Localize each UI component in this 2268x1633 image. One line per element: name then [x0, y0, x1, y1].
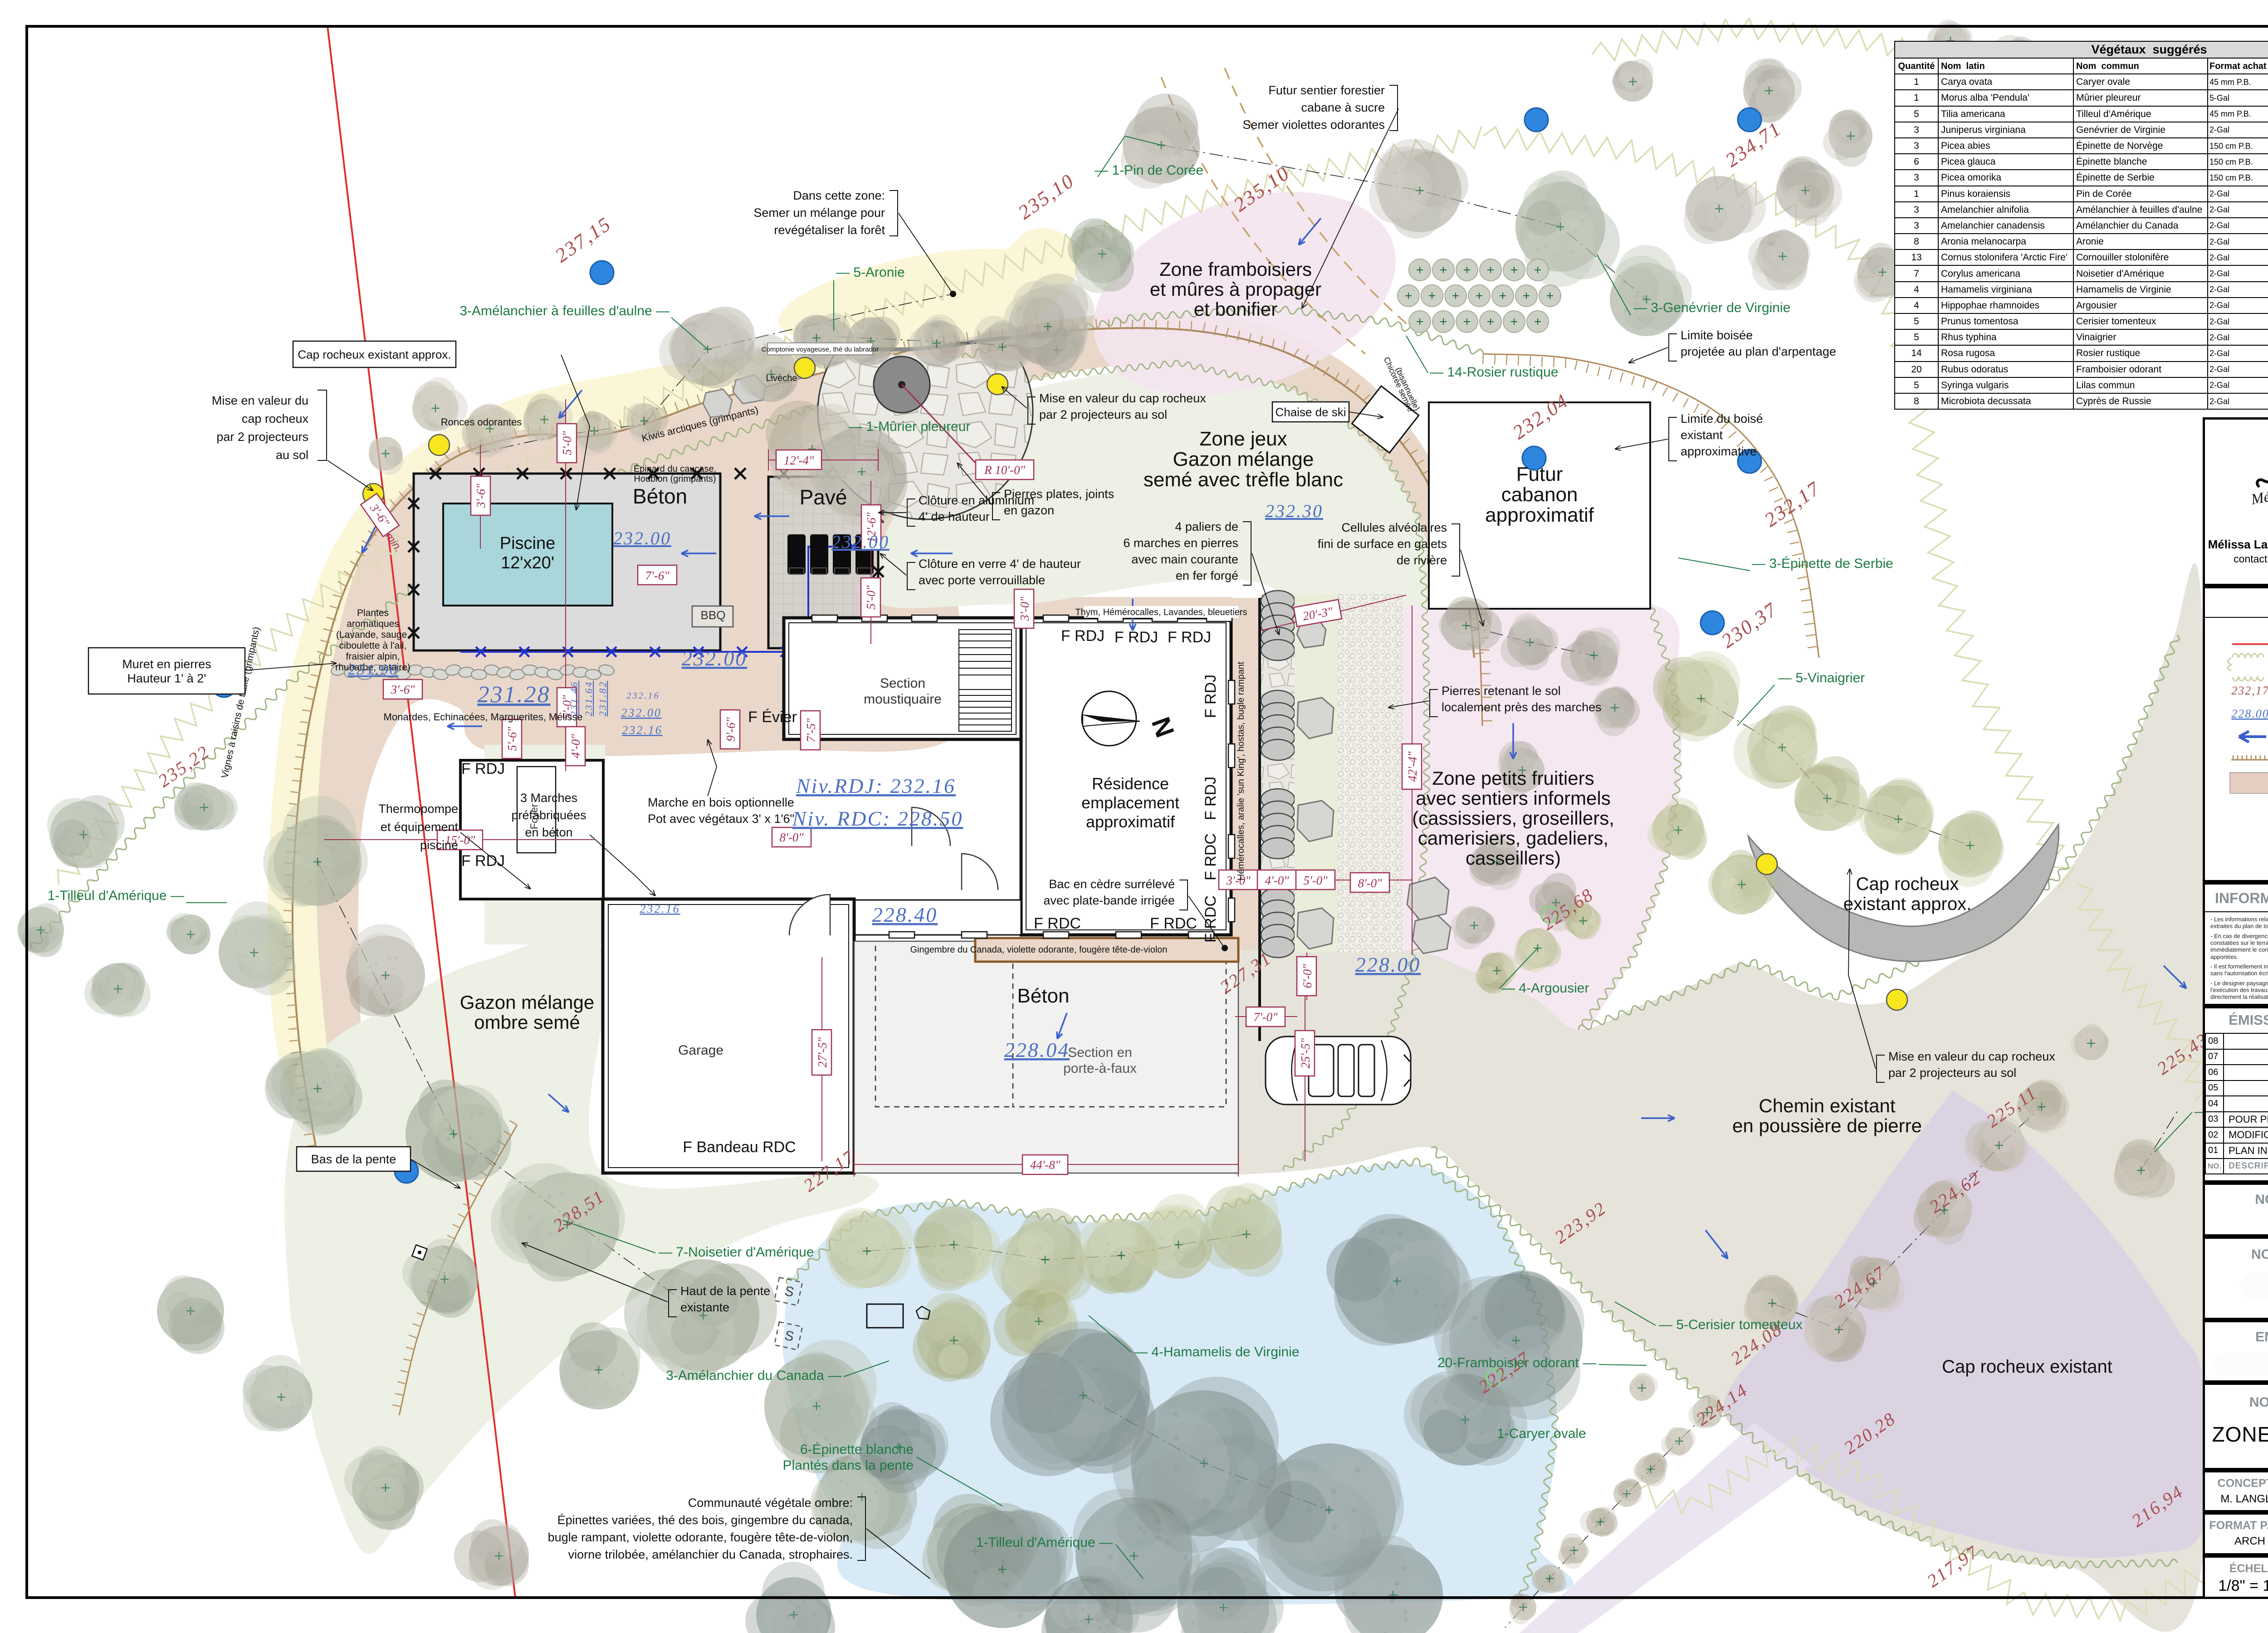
svg-text:7'-5": 7'-5" [804, 718, 818, 743]
svg-text:230,37: 230,37 [1717, 598, 1782, 652]
svg-text:F Évier: F Évier [748, 709, 797, 726]
svg-text:237,15: 237,15 [551, 212, 616, 267]
svg-text:casseillers): casseillers) [1466, 847, 1561, 869]
svg-text:Épinettes variées, thé des boi: Épinettes variées, thé des bois, gingemb… [557, 1513, 853, 1527]
svg-text:1-Caryer ovale: 1-Caryer ovale [1497, 1426, 1586, 1441]
svg-text:Béton: Béton [1017, 985, 1070, 1007]
svg-text:et équipement: et équipement [381, 820, 459, 834]
svg-text:BBQ: BBQ [701, 608, 726, 622]
svg-text:Semer un mélange pour: Semer un mélange pour [753, 206, 885, 220]
svg-text:Futur: Futur [1516, 463, 1563, 485]
svg-text:231.64: 231.64 [583, 681, 594, 717]
svg-text:de rivière: de rivière [1397, 553, 1447, 567]
svg-text:3'-0": 3'-0" [1018, 596, 1031, 621]
svg-text:Section: Section [880, 676, 925, 691]
svg-text:approximatif: approximatif [1086, 812, 1175, 831]
svg-text:et bonifier: et bonifier [1194, 298, 1277, 320]
svg-text:Résidence: Résidence [1092, 774, 1169, 793]
svg-text:Cellules alvéolaires: Cellules alvéolaires [1341, 521, 1447, 534]
svg-text:fini de surface en galets: fini de surface en galets [1318, 537, 1447, 551]
svg-text:Gingembre du Canada, violette: Gingembre du Canada, violette odorante, … [910, 945, 1167, 955]
svg-text:Niv. RDC: 228.50: Niv. RDC: 228.50 [792, 807, 963, 830]
svg-text:42'-4": 42'-4" [1406, 751, 1419, 782]
svg-text:approximative: approximative [1681, 445, 1757, 458]
svg-text:— 3-Genévrier de Virginie: — 3-Genévrier de Virginie [1633, 300, 1790, 315]
svg-text:par 2 projecteurs: par 2 projecteurs [216, 430, 308, 444]
svg-text:232,17: 232,17 [1760, 477, 1825, 531]
svg-text:232.00: 232.00 [682, 647, 748, 670]
svg-text:avec sentiers informels: avec sentiers informels [1416, 787, 1611, 809]
svg-text:F RDJ: F RDJ [461, 760, 505, 777]
svg-text:— 3-Épinette de Serbie: — 3-Épinette de Serbie [1752, 556, 1893, 571]
svg-text:F RDJ: F RDJ [1202, 777, 1219, 820]
svg-text:ciboulette à l'ail,: ciboulette à l'ail, [339, 640, 407, 651]
svg-text:Haut de la pente: Haut de la pente [680, 1284, 770, 1298]
svg-text:3-Amélanchier du Canada —: 3-Amélanchier du Canada — [666, 1368, 841, 1383]
svg-text:Limite du boisé: Limite du boisé [1681, 412, 1763, 425]
svg-text:Dans cette zone:: Dans cette zone: [793, 189, 885, 202]
svg-text:revégétaliser la forêt: revégétaliser la forêt [774, 223, 885, 237]
svg-text:5'-0": 5'-0" [1303, 874, 1328, 887]
svg-text:231.90: 231.90 [348, 661, 399, 678]
svg-text:F RDJ: F RDJ [1168, 629, 1211, 646]
svg-text:R 10'-0": R 10'-0" [984, 463, 1026, 477]
svg-text:avec main courante: avec main courante [1131, 552, 1238, 566]
svg-text:232,17: 232,17 [2231, 684, 2268, 697]
svg-text:Limite boisée: Limite boisée [1681, 328, 1753, 342]
svg-text:232.16: 232.16 [640, 902, 680, 915]
svg-text:232.16: 232.16 [622, 724, 663, 737]
svg-text:6-Épinette blanche: 6-Épinette blanche [800, 1442, 914, 1457]
svg-text:par 2 projecteurs au sol: par 2 projecteurs au sol [1888, 1066, 2016, 1080]
svg-text:porte-à-faux: porte-à-faux [1063, 1061, 1137, 1076]
svg-text:232.00: 232.00 [831, 532, 890, 552]
svg-text:en béton: en béton [525, 826, 572, 839]
svg-text:en poussière de pierre: en poussière de pierre [1732, 1115, 1922, 1136]
svg-text:6 marches en pierres: 6 marches en pierres [1123, 536, 1238, 550]
svg-text:Hémérocalles, aralie 'sun King: Hémérocalles, aralie 'sun King', hostas,… [1236, 661, 1246, 880]
svg-text:— 1-Pin de Corée: — 1-Pin de Corée [1095, 163, 1203, 178]
svg-text:viorne trilobée, amélanchier d: viorne trilobée, amélanchier du Canada, … [568, 1548, 853, 1561]
svg-text:— 5-Cerisier tomenteux: — 5-Cerisier tomenteux [1659, 1317, 1803, 1332]
svg-text:— 14-Rosier rustique: — 14-Rosier rustique [1430, 365, 1558, 380]
svg-text:(Lavande, sauge,: (Lavande, sauge, [336, 630, 410, 640]
svg-text:existant approx.: existant approx. [1843, 894, 1971, 914]
svg-text:et mûres à propager: et mûres à propager [1150, 279, 1321, 300]
svg-text:Futur sentier forestier: Futur sentier forestier [1268, 83, 1385, 97]
svg-text:Chaise de ski: Chaise de ski [1275, 405, 1346, 419]
svg-text:Monardes, Echinacées, Margueri: Monardes, Echinacées, Marguerites, Mélis… [384, 711, 583, 723]
svg-text:232.00: 232.00 [621, 706, 662, 719]
svg-text:moustiquaire: moustiquaire [864, 692, 942, 707]
svg-text:semé avec trèfle blanc: semé avec trèfle blanc [1144, 469, 1343, 491]
svg-text:Cap rocheux: Cap rocheux [1856, 874, 1959, 894]
svg-text:4 paliers de: 4 paliers de [1175, 520, 1238, 533]
svg-text:231.46: 231.46 [568, 681, 580, 717]
svg-text:Ronces odorantes: Ronces odorantes [441, 416, 522, 428]
svg-text:3'-6": 3'-6" [474, 484, 488, 508]
svg-text:4'-0": 4'-0" [569, 734, 582, 758]
svg-text:3'-6": 3'-6" [390, 683, 415, 696]
svg-text:approximatif: approximatif [1485, 504, 1594, 526]
svg-text:avec plate-bande irrigée: avec plate-bande irrigée [1043, 894, 1175, 907]
svg-text:231.82: 231.82 [597, 681, 608, 717]
svg-text:Pavé: Pavé [800, 485, 847, 509]
svg-text:6'-0": 6'-0" [1300, 964, 1314, 988]
svg-text:Mise en valeur du: Mise en valeur du [212, 394, 308, 407]
svg-text:localement près des marches: localement près des marches [1442, 700, 1602, 714]
svg-text:12'x20': 12'x20' [501, 553, 554, 572]
svg-text:27'-5": 27'-5" [816, 1037, 829, 1067]
svg-text:F RDJ: F RDJ [461, 852, 505, 870]
svg-text:Semer violettes odorantes: Semer violettes odorantes [1242, 118, 1385, 132]
svg-text:— 4-Hamamelis de Virginie: — 4-Hamamelis de Virginie [1134, 1345, 1300, 1359]
svg-text:232.30: 232.30 [1265, 501, 1323, 521]
svg-text:F RDJ: F RDJ [1114, 629, 1158, 646]
svg-text:(cassissiers, groseillers,: (cassissiers, groseillers, [1412, 807, 1614, 829]
svg-text:235,10: 235,10 [1014, 169, 1079, 224]
svg-text:4' de hauteur: 4' de hauteur [919, 510, 990, 523]
svg-text:Plantés dans la pente: Plantés dans la pente [782, 1458, 914, 1473]
svg-text:8'-0": 8'-0" [1358, 876, 1382, 890]
svg-text:Gazon mélange: Gazon mélange [460, 992, 595, 1013]
svg-text:7'-0": 7'-0" [1253, 1010, 1278, 1024]
svg-text:— 4-Argousier: — 4-Argousier [1501, 981, 1589, 996]
svg-text:en gazon: en gazon [1004, 504, 1054, 517]
svg-text:231.28: 231.28 [478, 682, 551, 708]
svg-text:— 1-Mûrier pleureur: — 1-Mûrier pleureur [849, 419, 970, 434]
svg-text:Zone framboisiers: Zone framboisiers [1159, 259, 1312, 280]
svg-text:cabanon: cabanon [1501, 484, 1578, 506]
svg-text:cap rocheux: cap rocheux [242, 412, 309, 425]
svg-text:Pierres plates, joints: Pierres plates, joints [1004, 487, 1114, 501]
svg-text:Béton: Béton [633, 484, 687, 508]
svg-text:Thermopompe: Thermopompe [378, 802, 458, 816]
svg-text:5'-0": 5'-0" [560, 431, 574, 455]
svg-text:228.00: 228.00 [1355, 953, 1421, 976]
svg-text:20-Framboisier odorant —: 20-Framboisier odorant — [1437, 1355, 1596, 1370]
svg-text:44'-8": 44'-8" [1030, 1158, 1061, 1172]
svg-text:Zone jeux: Zone jeux [1199, 428, 1287, 450]
svg-text:F RDC: F RDC [1034, 915, 1081, 932]
svg-text:Section en: Section en [1068, 1045, 1132, 1060]
svg-text:Cap rocheux existant approx.: Cap rocheux existant approx. [298, 347, 451, 361]
svg-text:Cap rocheux existant: Cap rocheux existant [1942, 1357, 2112, 1377]
svg-text:cabane à sucre: cabane à sucre [1301, 101, 1385, 114]
svg-text:Mise en valeur du cap rocheux: Mise en valeur du cap rocheux [1039, 391, 1206, 405]
svg-text:camerisiers, gadeliers,: camerisiers, gadeliers, [1418, 827, 1608, 849]
svg-text:3-Amélanchier à feuilles d'aul: 3-Amélanchier à feuilles d'aulne — [459, 303, 670, 318]
svg-text:Bac en cèdre surrélevé: Bac en cèdre surrélevé [1049, 877, 1175, 891]
svg-text:bugle rampant, violette odoran: bugle rampant, violette odorante, fougèr… [548, 1530, 853, 1544]
svg-text:Pot avec végétaux 3' x 1'6": Pot avec végétaux 3' x 1'6" [648, 812, 794, 826]
svg-text:— 5-Vinaigrier: — 5-Vinaigrier [1778, 670, 1865, 685]
svg-text:Muret en pierres: Muret en pierres [122, 657, 211, 671]
svg-text:4'-0": 4'-0" [1265, 874, 1289, 887]
svg-text:en fer forgé: en fer forgé [1176, 569, 1238, 582]
svg-text:25'-5": 25'-5" [1299, 1038, 1312, 1068]
svg-text:228.40: 228.40 [872, 903, 938, 926]
svg-text:5'-6": 5'-6" [505, 727, 519, 751]
svg-text:Niv.RDJ: 232.16: Niv.RDJ: 232.16 [796, 774, 956, 797]
svg-text:Garage: Garage [678, 1043, 723, 1058]
svg-text:Mise en valeur du cap rocheux: Mise en valeur du cap rocheux [1888, 1050, 2055, 1063]
svg-text:Livèche: Livèche [766, 373, 797, 383]
svg-text:Pierres retenant le sol: Pierres retenant le sol [1442, 684, 1561, 698]
svg-text:Épinard du caucase,: Épinard du caucase, [634, 464, 716, 474]
svg-text:Chemin existant: Chemin existant [1759, 1095, 1895, 1116]
svg-text:228.04: 228.04 [1004, 1038, 1070, 1061]
svg-text:Houblon (grimpants): Houblon (grimpants) [634, 474, 716, 484]
svg-text:par 2 projecteurs au sol: par 2 projecteurs au sol [1039, 408, 1167, 421]
svg-text:piscine: piscine [420, 838, 458, 852]
svg-text:Marche en bois optionnelle: Marche en bois optionnelle [648, 796, 794, 809]
svg-text:ombre semé: ombre semé [474, 1012, 580, 1033]
svg-text:— 7-Noisetier d'Amérique: — 7-Noisetier d'Amérique [659, 1245, 814, 1260]
svg-text:projetée au plan d'arpentage: projetée au plan d'arpentage [1681, 345, 1836, 358]
svg-text:9'-6": 9'-6" [724, 717, 738, 742]
svg-text:Plantes: Plantes [357, 608, 389, 618]
svg-text:F RDC: F RDC [1202, 833, 1219, 880]
svg-text:Hauteur 1' à 2': Hauteur 1' à 2' [127, 672, 206, 685]
svg-text:F RDC: F RDC [1150, 915, 1197, 932]
svg-text:préfabriquées: préfabriquées [511, 808, 586, 822]
svg-text:228.00: 228.00 [2231, 707, 2268, 720]
svg-text:Gazon mélange: Gazon mélange [1173, 448, 1314, 470]
svg-text:3 Marches: 3 Marches [520, 791, 577, 805]
svg-text:1-Tilleul d'Amérique —: 1-Tilleul d'Amérique — [48, 888, 184, 903]
svg-text:— 5-Aronie: — 5-Aronie [836, 265, 905, 280]
svg-text:232.00: 232.00 [613, 528, 671, 548]
svg-text:aromatiques: aromatiques [347, 619, 399, 629]
svg-text:Thym, Hémérocalles, Lavandes,: Thym, Hémérocalles, Lavandes, bleuetiers [1075, 607, 1247, 617]
svg-text:emplacement: emplacement [1081, 793, 1179, 812]
svg-text:Communauté végétale ombre:: Communauté végétale ombre: [688, 1496, 853, 1510]
svg-text:Comptonie voyageuse, thé du la: Comptonie voyageuse, thé du labrador [762, 346, 879, 353]
svg-text:au sol: au sol [276, 448, 308, 462]
svg-text:fraisier alpin,: fraisier alpin, [346, 651, 400, 662]
svg-text:1-Tilleul d'Amérique —: 1-Tilleul d'Amérique — [976, 1535, 1113, 1550]
svg-text:12'-4": 12'-4" [784, 454, 814, 467]
svg-text:existante: existante [680, 1301, 729, 1314]
svg-text:232.16: 232.16 [627, 691, 660, 701]
svg-text:8'-0": 8'-0" [779, 831, 804, 844]
svg-text:F RDJ: F RDJ [1202, 675, 1219, 718]
svg-text:F RDJ: F RDJ [1061, 627, 1105, 645]
svg-text:7'-6": 7'-6" [645, 569, 670, 582]
svg-text:Piscine: Piscine [500, 534, 556, 553]
svg-text:5'-0": 5'-0" [864, 585, 878, 610]
svg-text:avec porte verrouillable: avec porte verrouillable [919, 573, 1045, 587]
svg-text:Clôture en verre 4' de hauteur: Clôture en verre 4' de hauteur [919, 557, 1081, 571]
svg-text:F Bandeau RDC: F Bandeau RDC [683, 1139, 796, 1156]
svg-text:Bas de la pente: Bas de la pente [311, 1153, 396, 1166]
svg-text:Zone petits fruitiers: Zone petits fruitiers [1432, 768, 1594, 789]
svg-text:existant: existant [1681, 428, 1723, 442]
